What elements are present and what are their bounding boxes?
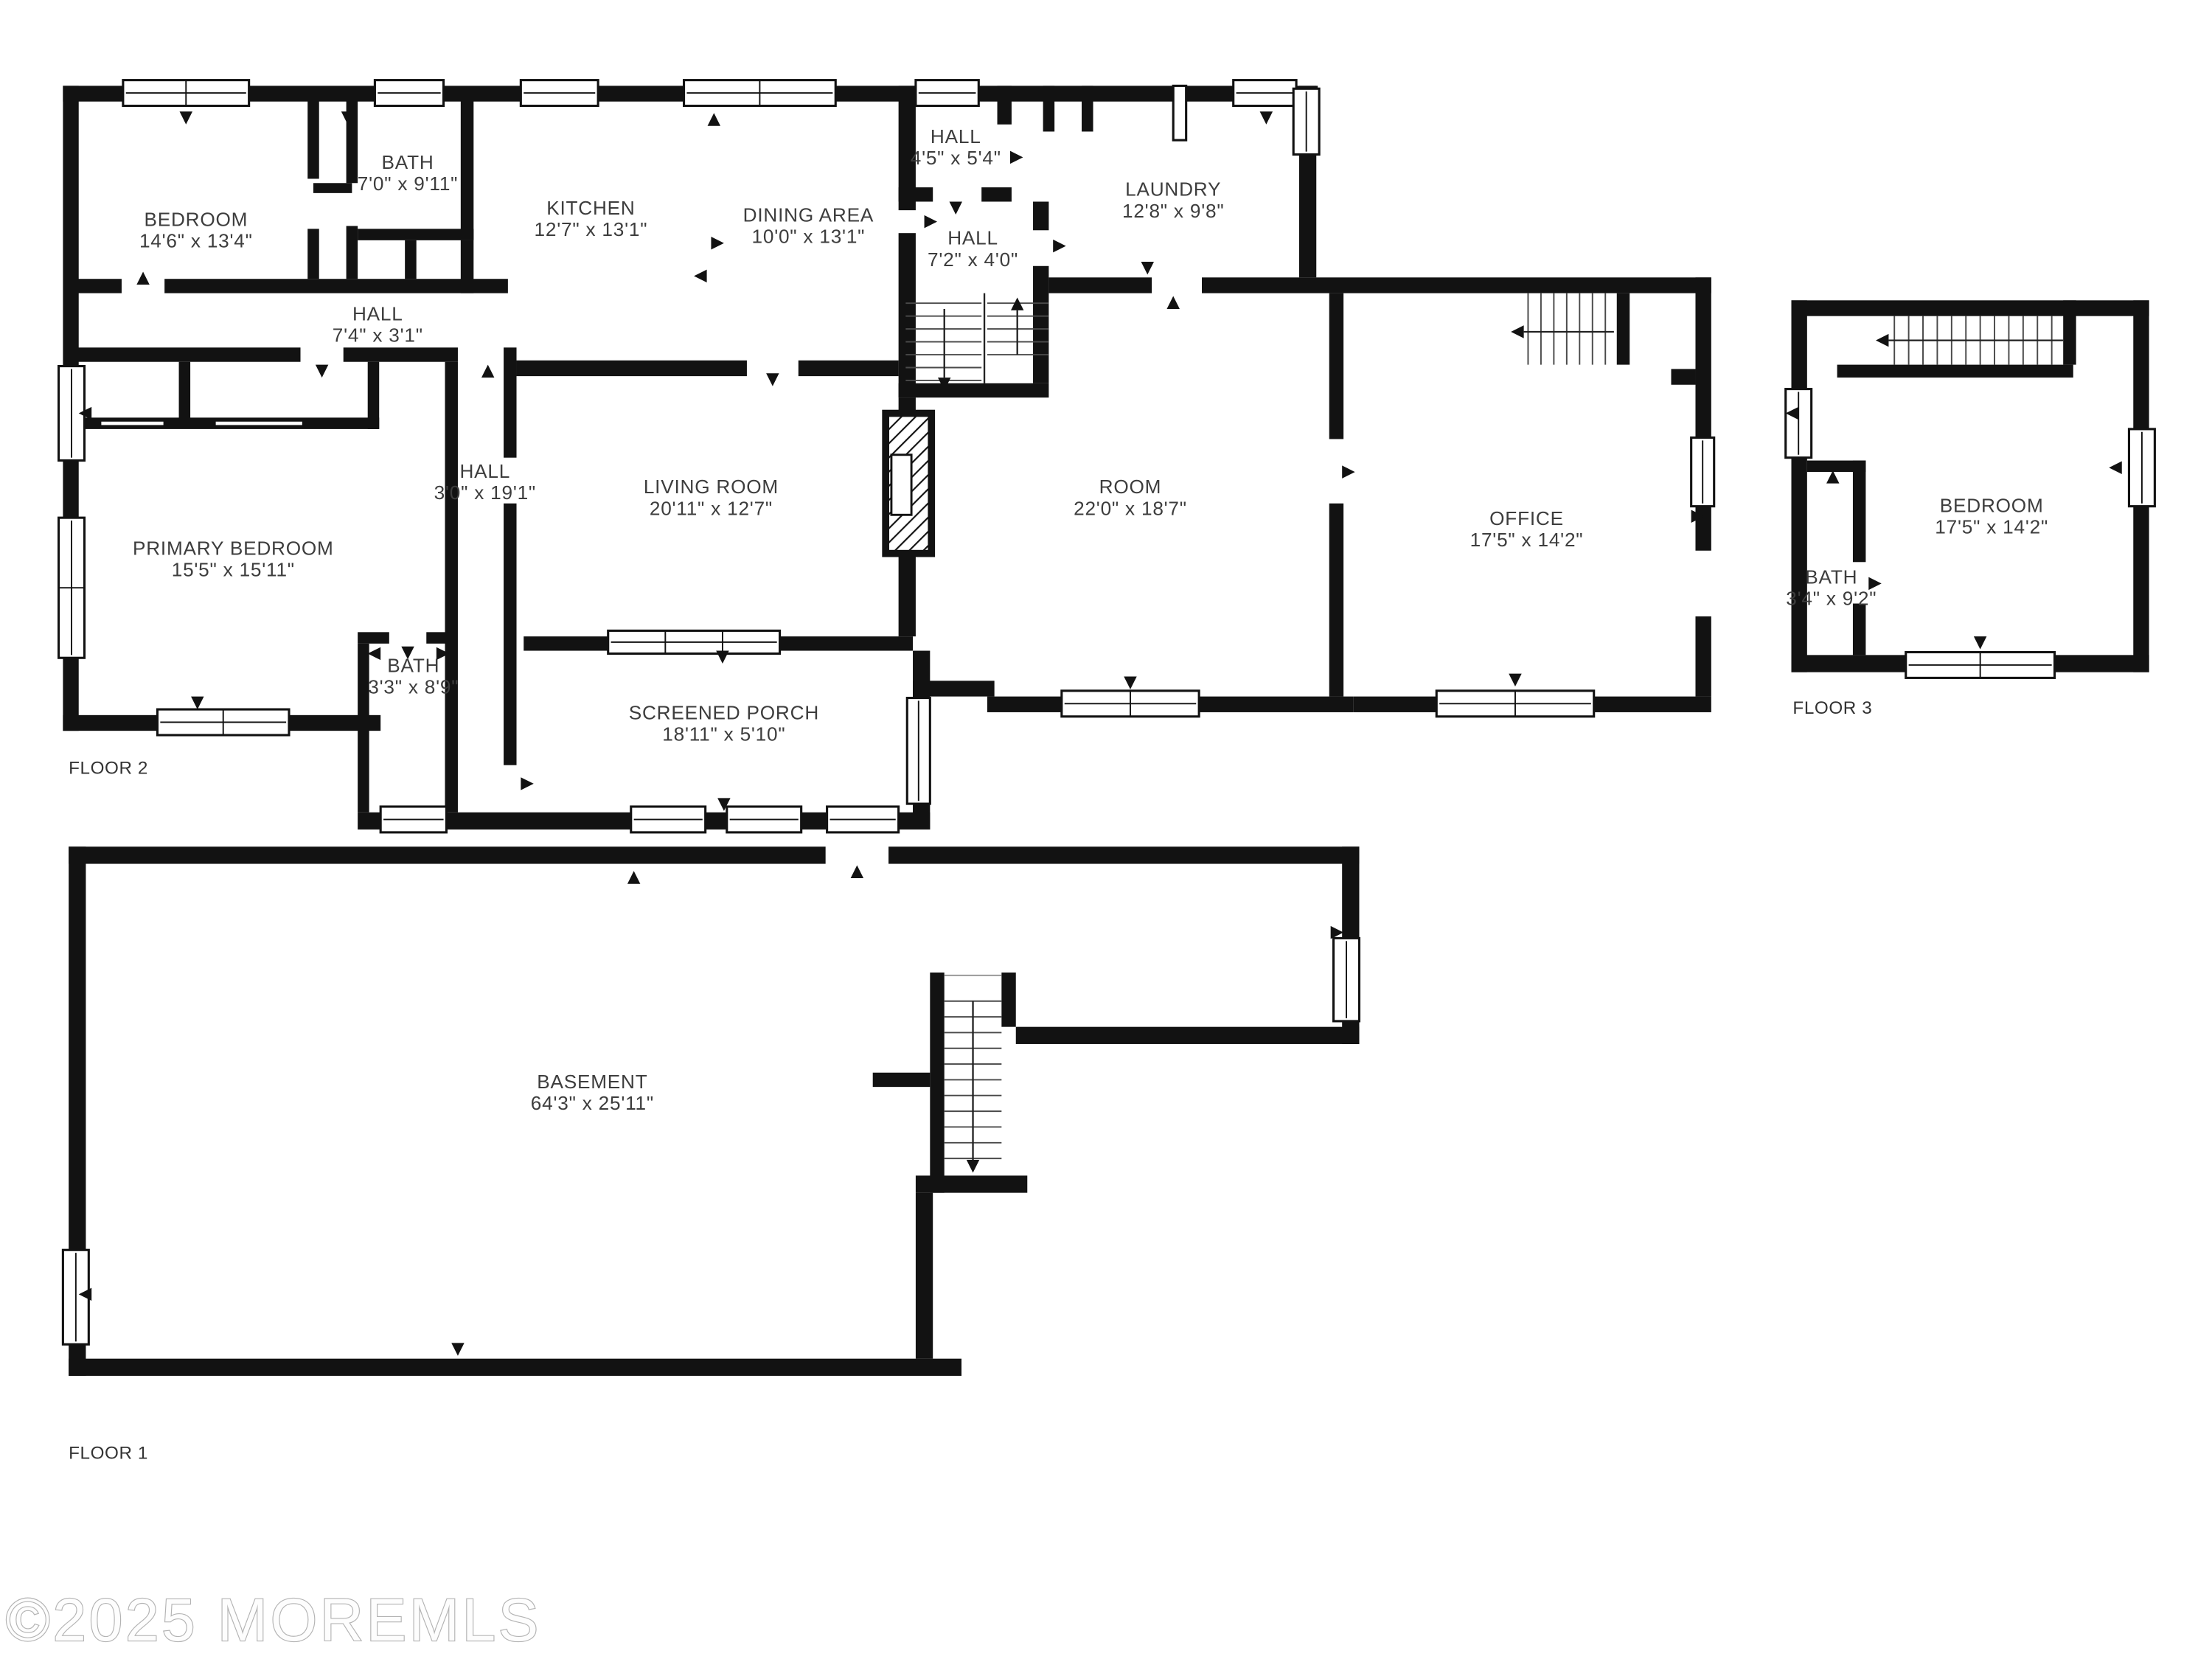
room-name: BATH	[382, 151, 434, 173]
room-name: ROOM	[1099, 476, 1162, 498]
room-name: HALL	[931, 125, 981, 147]
room-name: HALL	[460, 460, 511, 482]
room-dims: 15'5" x 15'11"	[172, 559, 295, 581]
window	[2129, 429, 2154, 507]
window	[1334, 938, 1360, 1021]
room-dims: 7'4" x 3'1"	[333, 324, 423, 347]
window	[123, 80, 249, 106]
window	[1293, 88, 1319, 154]
stairs-office-icon	[1511, 293, 1614, 365]
room-label-kitchen: KITCHEN 12'7" x 13'1"	[535, 197, 648, 240]
fireplace-icon	[886, 414, 931, 554]
stairs-basement-icon	[945, 975, 1002, 1173]
window	[1786, 389, 1812, 458]
room-label-laundry: LAUNDRY 12'8" x 9'8"	[1122, 178, 1224, 222]
window	[1436, 691, 1593, 717]
window	[380, 807, 446, 832]
room-dims: 17'5" x 14'2"	[1470, 529, 1584, 551]
room-label-room: ROOM 22'0" x 18'7"	[1074, 476, 1187, 519]
room-label-bedroom-f3: BEDROOM 17'5" x 14'2"	[1935, 494, 2048, 538]
window	[521, 80, 598, 106]
room-dims: 4'5" x 5'4"	[911, 147, 1001, 169]
window	[1906, 652, 2055, 678]
floor-1-label: FLOOR 1	[69, 1443, 148, 1463]
walls-floor-3	[1791, 300, 2149, 672]
room-dims: 22'0" x 18'7"	[1074, 497, 1187, 519]
room-dims: 7'2" x 4'0"	[928, 248, 1018, 271]
window	[1691, 438, 1714, 507]
room-dims: 10'0" x 13'1"	[752, 226, 866, 248]
stairs-main-icon	[905, 293, 1048, 391]
floor-plan-image: BEDROOM 14'6" x 13'4" BATH 7'0" x 9'11" …	[0, 0, 2212, 1659]
window	[157, 709, 289, 735]
room-dims: 7'0" x 9'11"	[358, 173, 458, 195]
floor-1-plan: BASEMENT 64'3" x 25'11" FLOOR 1	[63, 846, 1359, 1463]
room-name: BEDROOM	[1940, 494, 2044, 516]
room-name: DINING AREA	[743, 204, 874, 226]
window	[375, 80, 443, 106]
window	[907, 698, 930, 804]
window	[684, 80, 836, 106]
room-dims: 17'5" x 14'2"	[1935, 515, 2048, 538]
room-label-basement: BASEMENT 64'3" x 25'11"	[531, 1071, 654, 1114]
windows-floor-1	[63, 938, 1359, 1344]
room-label-primary-bedroom: PRIMARY BEDROOM 15'5" x 15'11"	[133, 538, 334, 581]
room-label-bath-upper-f2: BATH 7'0" x 9'11"	[358, 151, 458, 195]
room-name: OFFICE	[1489, 507, 1564, 529]
room-label-bedroom-f2: BEDROOM 14'6" x 13'4"	[139, 208, 253, 251]
room-name: BATH	[1805, 566, 1857, 588]
room-dims: 20'11" x 12'7"	[650, 497, 773, 519]
room-dims: 12'8" x 9'8"	[1122, 200, 1224, 222]
room-dims: 12'7" x 13'1"	[535, 218, 648, 240]
room-label-screened-porch: SCREENED PORCH 18'11" x 5'10"	[629, 702, 819, 745]
window	[59, 518, 85, 658]
window	[827, 807, 899, 832]
room-dims: 3'0" x 19'1"	[434, 481, 536, 504]
room-label-living-room: LIVING ROOM 20'11" x 12'7"	[644, 476, 779, 519]
room-name: BATH	[387, 655, 439, 677]
room-dims: 14'6" x 13'4"	[139, 230, 253, 252]
room-name: LAUNDRY	[1125, 178, 1221, 201]
window	[1062, 691, 1199, 717]
room-label-dining-area: DINING AREA 10'0" x 13'1"	[743, 204, 874, 248]
floor-2-plan: BEDROOM 14'6" x 13'4" BATH 7'0" x 9'11" …	[59, 80, 1714, 832]
window	[1234, 80, 1296, 106]
window	[608, 630, 780, 653]
room-name: BASEMENT	[537, 1071, 647, 1093]
room-label-office: OFFICE 17'5" x 14'2"	[1470, 507, 1584, 551]
room-name: HALL	[352, 302, 403, 324]
window	[727, 807, 801, 832]
room-name: KITCHEN	[546, 197, 635, 219]
window	[916, 80, 978, 106]
window	[631, 807, 706, 832]
floor-3-plan: BEDROOM 17'5" x 14'2" BATH 3'4" x 9'2" F…	[1786, 300, 2155, 718]
watermark-text: ©2025 MOREMLS	[6, 1587, 541, 1654]
stairs-floor-3-icon	[1876, 316, 2063, 365]
floor-2-label: FLOOR 2	[69, 758, 148, 778]
room-label-hall-top: HALL 4'5" x 5'4"	[911, 125, 1001, 169]
room-dims: 3'3" x 8'9"	[368, 676, 459, 698]
room-dims: 18'11" x 5'10"	[662, 723, 785, 745]
room-dims: 3'4" x 9'2"	[1786, 587, 1877, 609]
room-name: LIVING ROOM	[644, 476, 779, 498]
room-name: BEDROOM	[144, 208, 248, 230]
room-name: PRIMARY BEDROOM	[133, 538, 334, 560]
walls-floor-1	[69, 846, 1359, 1376]
room-name: HALL	[947, 227, 998, 249]
room-name: SCREENED PORCH	[629, 702, 819, 724]
floor-3-label: FLOOR 3	[1792, 698, 1872, 718]
room-dims: 64'3" x 25'11"	[531, 1092, 654, 1114]
room-label-hall-left: HALL 7'4" x 3'1"	[333, 302, 423, 346]
door-arrows-floor-1	[79, 865, 1343, 1355]
room-label-hall-mid: HALL 7'2" x 4'0"	[928, 227, 1018, 271]
